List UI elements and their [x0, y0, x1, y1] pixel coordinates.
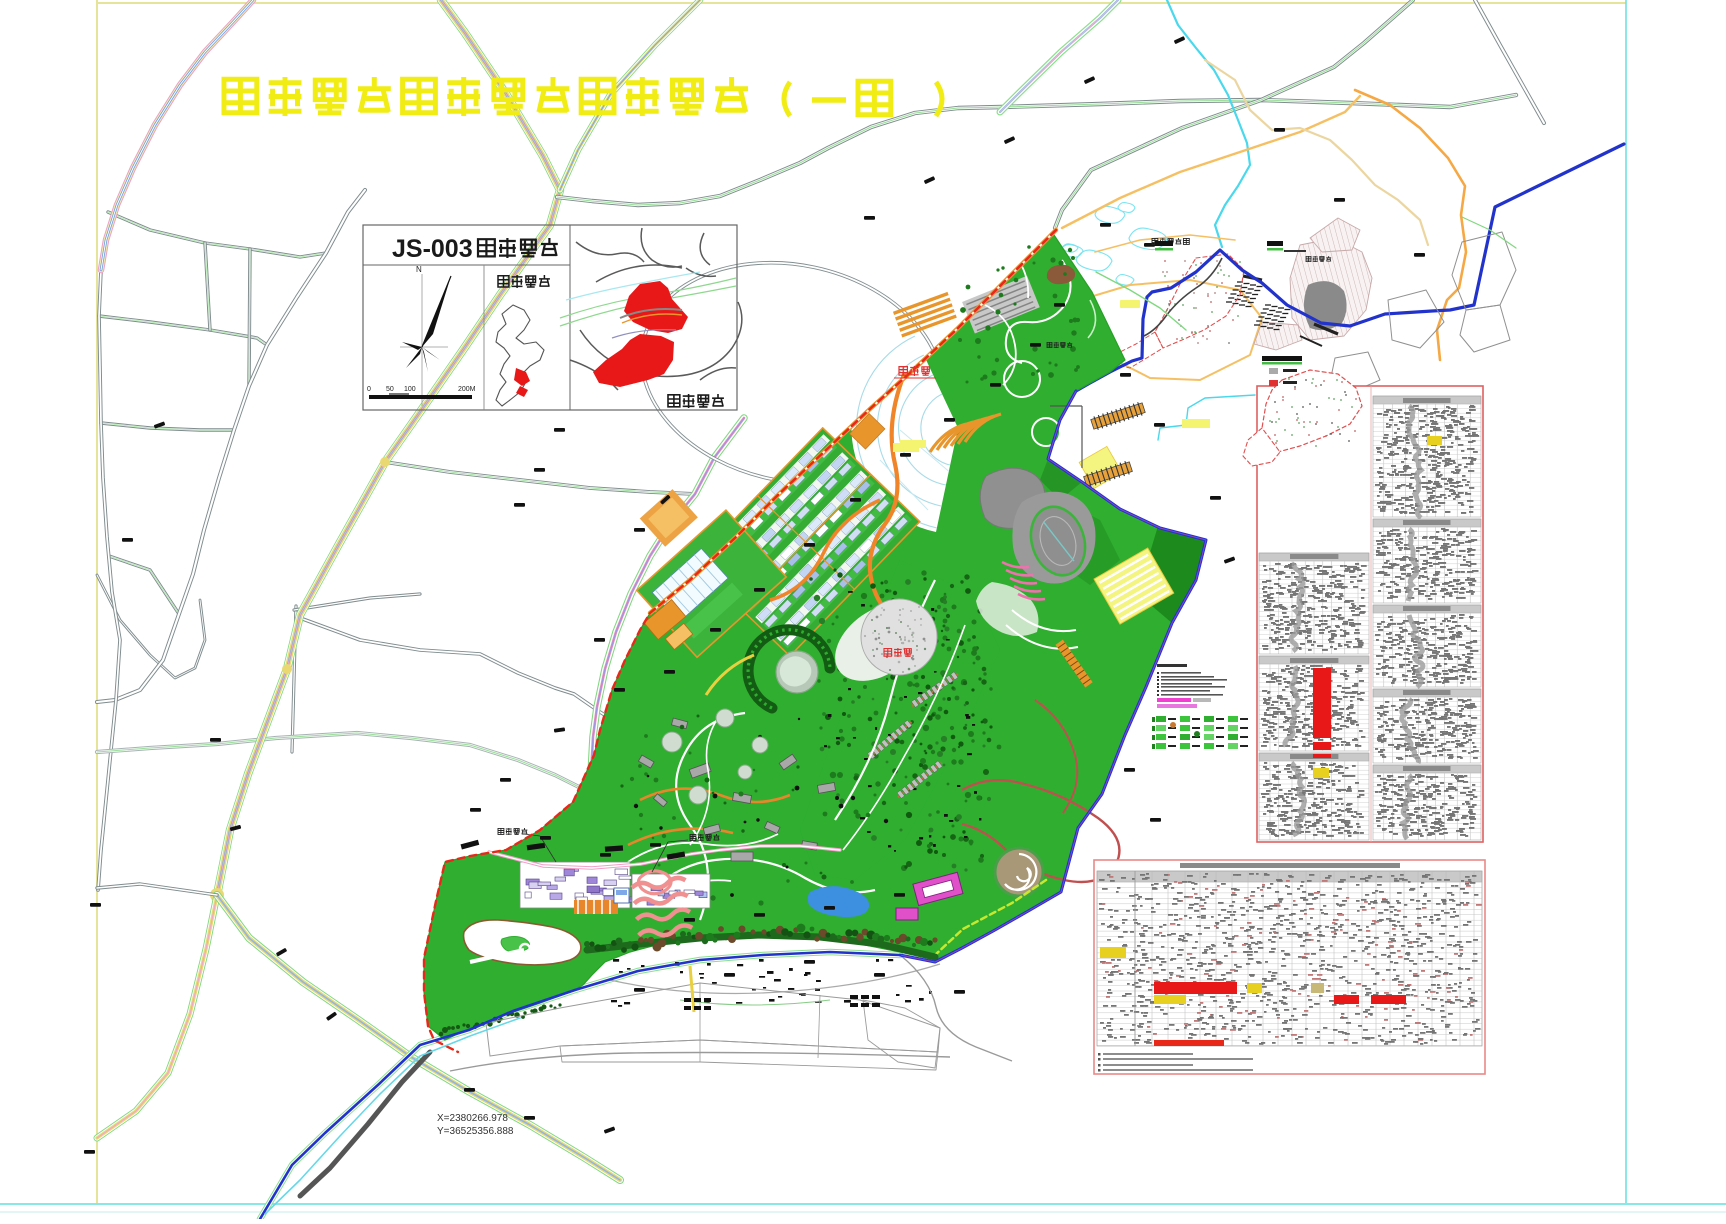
- svg-text:JS-003: JS-003: [392, 235, 473, 263]
- svg-text:100: 100: [404, 386, 416, 393]
- svg-text:N: N: [416, 265, 422, 274]
- svg-text:200M: 200M: [458, 386, 476, 393]
- svg-text:0: 0: [367, 386, 371, 393]
- svg-text:50: 50: [386, 386, 394, 393]
